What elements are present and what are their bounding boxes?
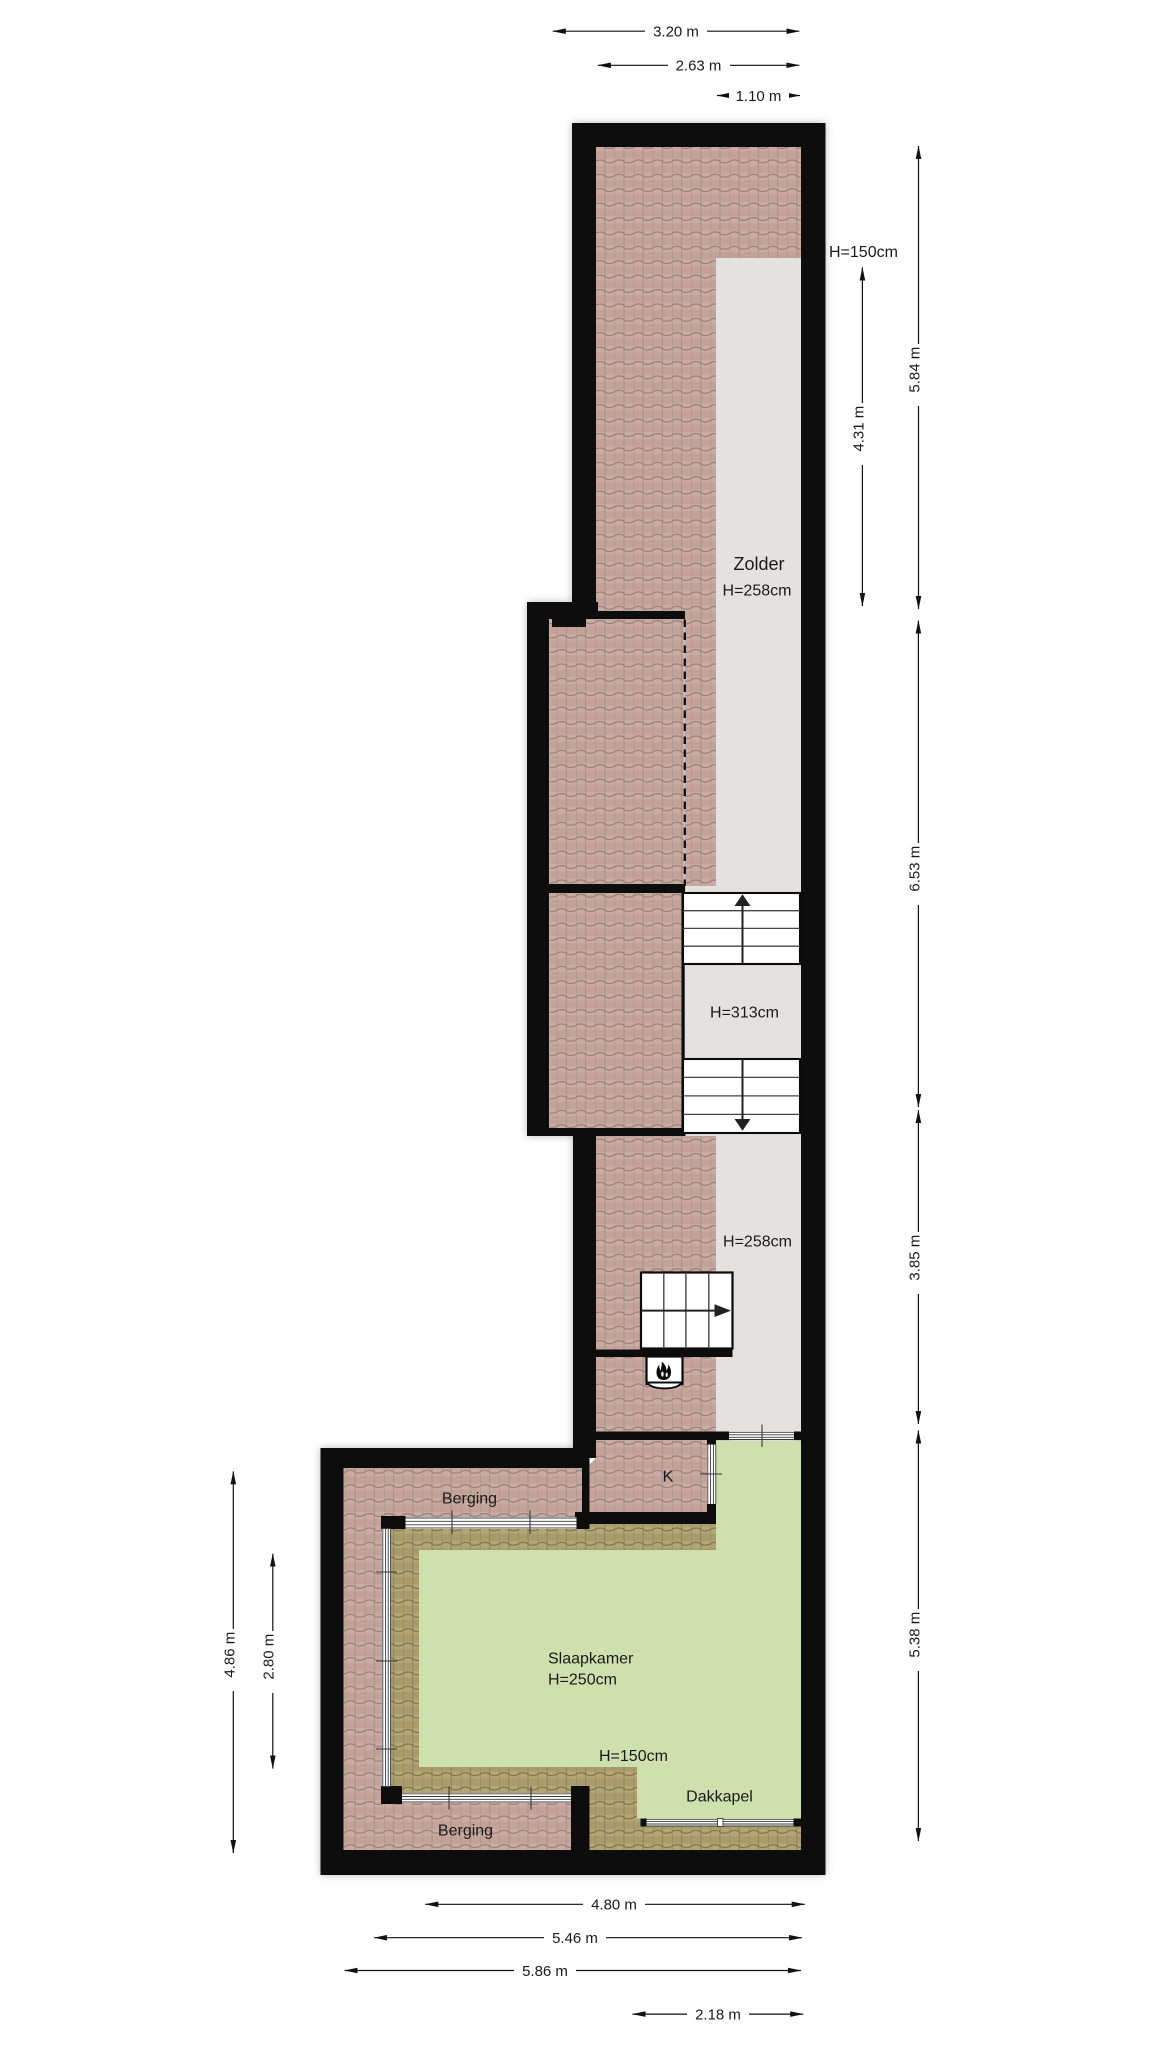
- svg-text:4.80 m: 4.80 m: [591, 1897, 637, 1914]
- svg-text:5.84 m: 5.84 m: [907, 347, 924, 393]
- svg-text:3.20 m: 3.20 m: [653, 24, 699, 41]
- svg-text:H=258cm: H=258cm: [723, 1234, 792, 1251]
- svg-text:H=313cm: H=313cm: [710, 1005, 779, 1022]
- svg-text:4.31 m: 4.31 m: [851, 406, 868, 452]
- svg-text:H=150cm: H=150cm: [829, 244, 898, 261]
- svg-text:5.46 m: 5.46 m: [552, 1930, 598, 1947]
- svg-text:H=250cm: H=250cm: [548, 1672, 617, 1689]
- svg-text:2.80 m: 2.80 m: [261, 1634, 278, 1680]
- svg-text:Berging: Berging: [442, 1491, 497, 1508]
- svg-text:H=150cm: H=150cm: [599, 1748, 668, 1765]
- svg-text:5.86 m: 5.86 m: [522, 1963, 568, 1980]
- svg-text:Slaapkamer: Slaapkamer: [548, 1651, 634, 1668]
- svg-text:H=258cm: H=258cm: [723, 583, 792, 600]
- svg-text:5.38 m: 5.38 m: [907, 1612, 924, 1658]
- svg-text:Berging: Berging: [438, 1823, 493, 1840]
- svg-text:1.10 m: 1.10 m: [736, 88, 782, 105]
- svg-text:2.63 m: 2.63 m: [676, 58, 722, 75]
- svg-text:3.85 m: 3.85 m: [907, 1235, 924, 1281]
- svg-text:2.18 m: 2.18 m: [695, 2006, 741, 2023]
- svg-text:6.53 m: 6.53 m: [907, 846, 924, 892]
- svg-text:K: K: [663, 1469, 674, 1486]
- svg-text:4.86 m: 4.86 m: [222, 1632, 239, 1678]
- svg-text:Zolder: Zolder: [733, 554, 784, 574]
- svg-text:Dakkapel: Dakkapel: [686, 1789, 753, 1806]
